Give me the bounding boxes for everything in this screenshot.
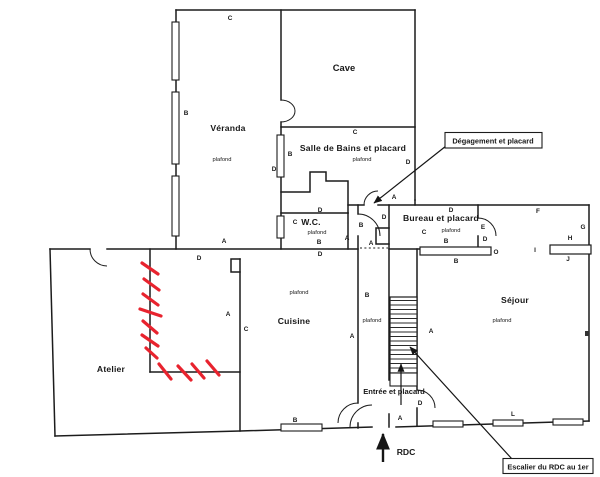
wall-letter: D <box>272 166 277 173</box>
callout-degagement-label: Dégagement et placard <box>452 137 534 146</box>
door-arcs <box>90 100 496 427</box>
wall-letter: B <box>317 239 322 246</box>
wall-letter: D <box>382 214 387 221</box>
wall-letter: B <box>293 417 298 424</box>
ceiling-label-veranda: plafond <box>212 157 231 163</box>
ceiling-label-wc: plafond <box>307 230 326 236</box>
wall-letter: D <box>197 255 202 262</box>
staircase <box>390 297 417 386</box>
wall-letter: A <box>369 240 374 247</box>
closet <box>550 245 591 254</box>
door-arc-atelier <box>90 249 107 266</box>
closet <box>420 247 491 255</box>
floor-label-rdc: RDC <box>397 447 416 457</box>
wall-letter: D <box>449 207 454 214</box>
wall-letter: B <box>365 292 370 299</box>
floor-plan-drawing: Dégagement et placard Escalier du RDC au… <box>0 0 600 477</box>
room-label-cuisine: Cuisine <box>278 316 310 326</box>
wall-letter: A <box>398 415 403 422</box>
room-label-atelier: Atelier <box>97 364 126 374</box>
wall-letter: A <box>222 238 227 245</box>
door-arc-cave <box>281 100 295 122</box>
wall-letter: C <box>244 326 249 333</box>
wall-letter: A <box>392 194 397 201</box>
wall-letter: D <box>318 251 323 258</box>
floor-plan-sheet: Dégagement et placard Escalier du RDC au… <box>0 0 600 477</box>
wall-letter: G <box>581 224 586 231</box>
window <box>553 419 583 425</box>
wall-letter: L <box>511 411 515 418</box>
window <box>281 424 322 431</box>
window <box>493 420 523 426</box>
wall-letter: A <box>429 328 434 335</box>
wall-letter: B <box>444 238 449 245</box>
wall-letter: C <box>293 219 298 226</box>
ceiling-label-degagement: plafond <box>362 318 381 324</box>
wall-letter: D <box>318 207 323 214</box>
wall-mark <box>585 331 589 336</box>
wall-letter: D <box>418 400 423 407</box>
wall-letter: D <box>406 159 411 166</box>
leader-degagement <box>374 146 446 203</box>
window <box>433 421 463 427</box>
window <box>172 92 179 164</box>
ceiling-label-cuisine: plafond <box>289 290 308 296</box>
wall-letter: D <box>483 236 488 243</box>
room-label-sejour: Séjour <box>501 295 529 305</box>
door-arc-degagement <box>364 191 378 205</box>
wall-letter: A <box>350 333 355 340</box>
wall-letter: A <box>226 311 231 318</box>
wall-letter: C <box>422 229 427 236</box>
wall-letter: B <box>184 110 189 117</box>
stair-landing <box>390 373 417 386</box>
window <box>277 135 284 177</box>
room-label-cave: Cave <box>333 62 355 73</box>
callout-degagement: Dégagement et placard <box>445 133 542 149</box>
callout-escalier-label: Escalier du RDC au 1er <box>507 463 588 472</box>
window <box>172 22 179 80</box>
wall-letters: C B B D C D A D B A A D C B D A D A C B … <box>184 15 586 424</box>
room-label-bureau: Bureau et placard <box>403 213 479 223</box>
wall-letter: B <box>288 151 293 158</box>
ceiling-label-sejour: plafond <box>492 318 511 324</box>
room-label-veranda: Véranda <box>210 123 245 133</box>
wall-letter: I <box>534 247 536 254</box>
wall-letter: F <box>536 208 540 215</box>
wall-letter: B <box>359 222 364 229</box>
wall-letter: C <box>353 129 358 136</box>
door-arc-entree <box>350 405 372 427</box>
wall-letter: J <box>566 256 570 263</box>
ceiling-label-bureau: plafond <box>441 228 460 234</box>
window <box>172 176 179 236</box>
window <box>277 216 284 238</box>
room-label-wc: W.C. <box>301 217 320 227</box>
wall-letter: A <box>345 235 350 242</box>
wall-letter: H <box>568 235 573 242</box>
room-label-salle-de-bains: Salle de Bains et placard <box>300 143 406 153</box>
ceiling-label-salle-de-bains: plafond <box>352 157 371 163</box>
wall-letter: B <box>454 258 459 265</box>
leader-escalier <box>410 347 512 459</box>
demolition-marks <box>140 263 219 380</box>
wall-letter: E <box>481 224 486 231</box>
wall-letter: O <box>494 249 499 256</box>
wall-letter: C <box>228 15 233 22</box>
room-label-entree: Entrée et placard <box>363 387 425 396</box>
callout-escalier: Escalier du RDC au 1er <box>503 459 593 474</box>
